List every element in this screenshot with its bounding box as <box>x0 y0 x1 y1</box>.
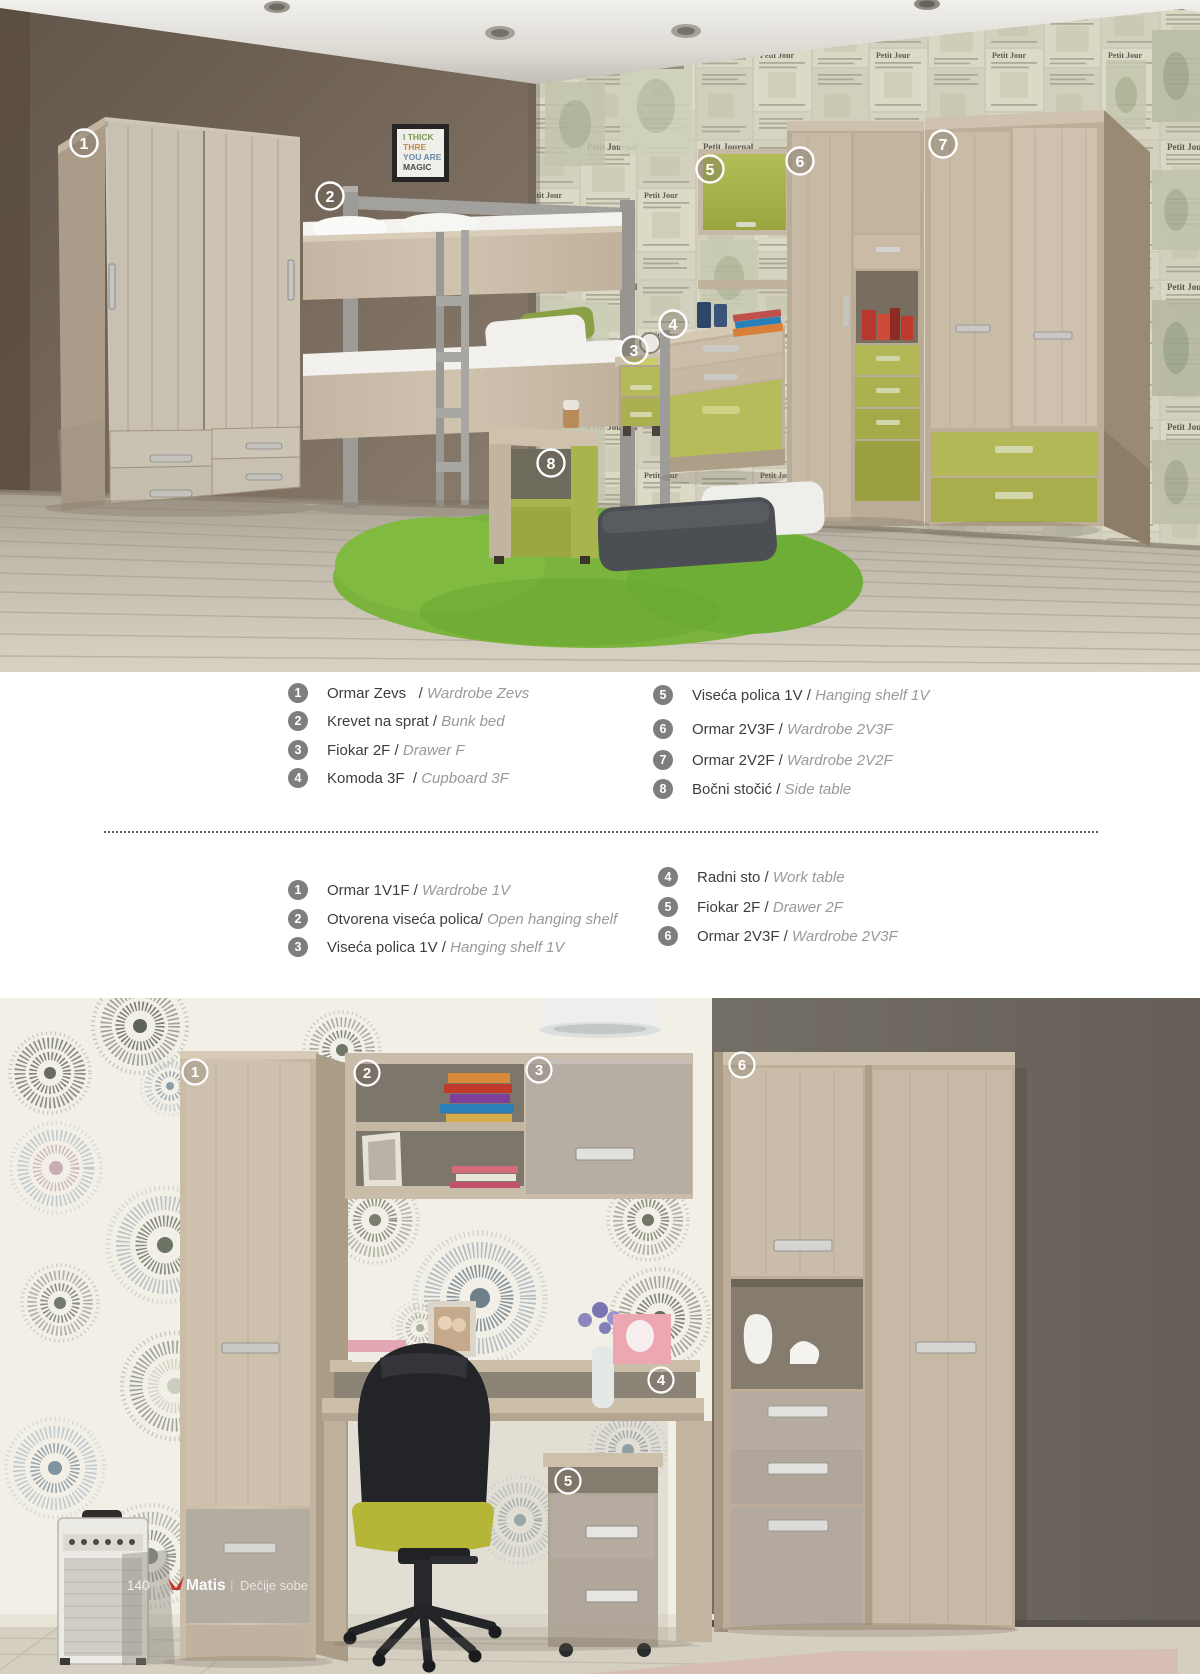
svg-text:4: 4 <box>657 1372 666 1389</box>
svg-text:|: | <box>230 1577 234 1593</box>
svg-text:1: 1 <box>191 1064 199 1081</box>
svg-text:1: 1 <box>80 136 89 153</box>
svg-text:8: 8 <box>547 456 556 473</box>
svg-text:5: 5 <box>564 1473 572 1490</box>
svg-text:2: 2 <box>326 189 335 206</box>
svg-text:6: 6 <box>738 1057 746 1074</box>
svg-text:Matis: Matis <box>186 1577 226 1594</box>
svg-text:I THICK: I THICK <box>403 132 435 142</box>
svg-text:3: 3 <box>630 343 639 360</box>
svg-text:MAGIC: MAGIC <box>403 162 431 172</box>
svg-text:140: 140 <box>127 1578 150 1593</box>
svg-text:6: 6 <box>796 154 805 171</box>
svg-text:2: 2 <box>363 1065 371 1082</box>
svg-text:YOU ARE: YOU ARE <box>403 152 442 162</box>
svg-text:4: 4 <box>669 317 678 334</box>
svg-text:5: 5 <box>706 162 715 179</box>
svg-text:Dečije sobe: Dečije sobe <box>240 1578 308 1593</box>
svg-text:3: 3 <box>535 1062 543 1079</box>
svg-text:|: | <box>156 1578 160 1593</box>
svg-text:7: 7 <box>939 137 948 154</box>
svg-text:THRE: THRE <box>403 142 426 152</box>
